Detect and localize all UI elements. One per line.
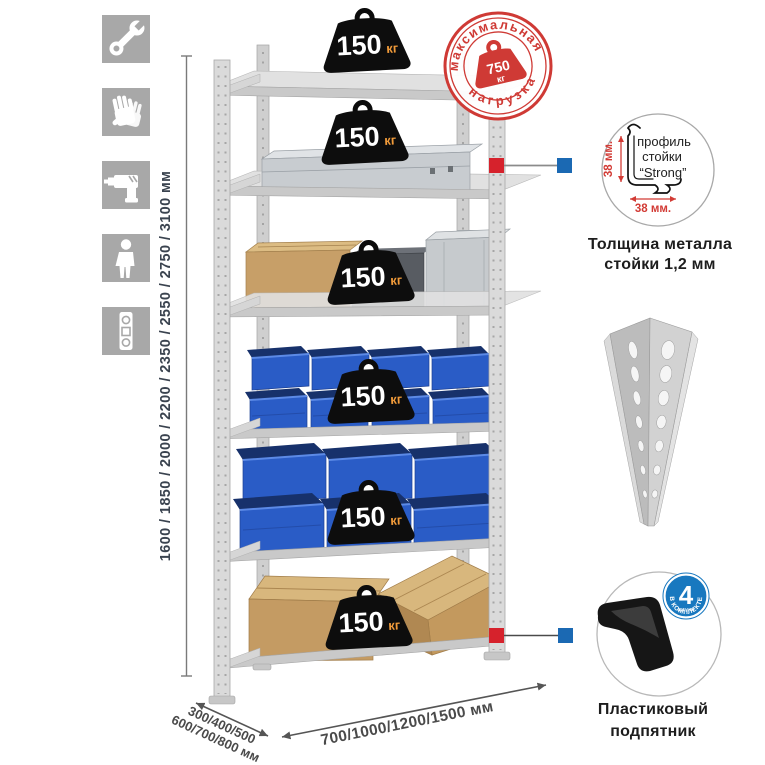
- profile-label: профиль: [637, 134, 691, 149]
- profile-callout: 38 мм. 38 мм. профиль стойки “Strong” То…: [588, 114, 732, 273]
- plastic-foot-callout: 4 штуки в комплекте Пластиковый подпятни…: [597, 572, 721, 740]
- callout-marker-red: [489, 158, 504, 173]
- callout-marker-blue: [558, 628, 573, 643]
- foot-caption: Пластиковый: [598, 701, 708, 718]
- profile-dim-horizontal: 38 мм.: [635, 203, 671, 215]
- wrench-icon: [102, 15, 150, 63]
- max-load-stamp: максимальная нагрузка 750 кг: [434, 2, 561, 129]
- load-value: 150: [340, 380, 387, 412]
- load-value: 150: [338, 606, 385, 638]
- gloves-icon: [102, 88, 150, 136]
- profile-caption: стойки 1,2 мм: [604, 256, 715, 273]
- foot-plate: [209, 696, 235, 704]
- load-value: 150: [340, 501, 387, 533]
- load-unit: кг: [386, 40, 399, 56]
- profile-dim-vertical: 38 мм.: [603, 141, 615, 177]
- shelf-load-badge: 150 кг: [319, 100, 409, 165]
- foot-plate: [253, 664, 271, 670]
- load-value: 150: [336, 29, 383, 61]
- foot-plate: [484, 652, 510, 660]
- height-dimension-label: 1600 / 1850 / 2000 / 2200 / 2350 / 2550 …: [158, 171, 174, 562]
- load-value: 150: [340, 261, 387, 293]
- depth-dimension: 300/400/500 600/700/800 мм: [169, 698, 268, 765]
- callout-marker-blue: [557, 158, 572, 173]
- width-dimension-label: 700/1000/1200/1500 мм: [319, 698, 495, 749]
- drill-icon: [102, 161, 150, 209]
- load-unit: кг: [390, 512, 403, 528]
- load-unit: кг: [390, 272, 403, 288]
- load-value: 150: [334, 121, 381, 153]
- upright-post-image: [604, 318, 698, 526]
- load-unit: кг: [390, 391, 403, 407]
- assembly-icons: [102, 15, 150, 355]
- connector-top: [489, 158, 572, 173]
- person-icon: [102, 234, 150, 282]
- connector-bottom: [489, 628, 573, 643]
- front-right-post: [489, 54, 505, 656]
- quantity-badge: 4 штуки в комплекте: [663, 573, 709, 619]
- height-dimension: 1600 / 1850 / 2000 / 2200 / 2350 / 2550 …: [158, 56, 192, 676]
- load-unit: кг: [384, 132, 397, 148]
- quantity-value: 4: [679, 580, 694, 610]
- scene: 1600 / 1850 / 2000 / 2200 / 2350 / 2550 …: [0, 0, 765, 765]
- shelf-load-badge: 150 кг: [321, 8, 411, 73]
- profile-label: стойки: [642, 149, 682, 164]
- profile-label: “Strong”: [640, 165, 687, 180]
- product-infographic: 1600 / 1850 / 2000 / 2200 / 2350 / 2550 …: [0, 0, 765, 765]
- front-left-post: [214, 60, 230, 700]
- profile-caption: Толщина металла: [588, 236, 732, 253]
- width-dimension: 700/1000/1200/1500 мм: [282, 685, 546, 749]
- callout-marker-red: [489, 628, 504, 643]
- load-unit: кг: [388, 617, 401, 633]
- foot-caption: подпятник: [610, 723, 696, 740]
- level-icon: [102, 307, 150, 355]
